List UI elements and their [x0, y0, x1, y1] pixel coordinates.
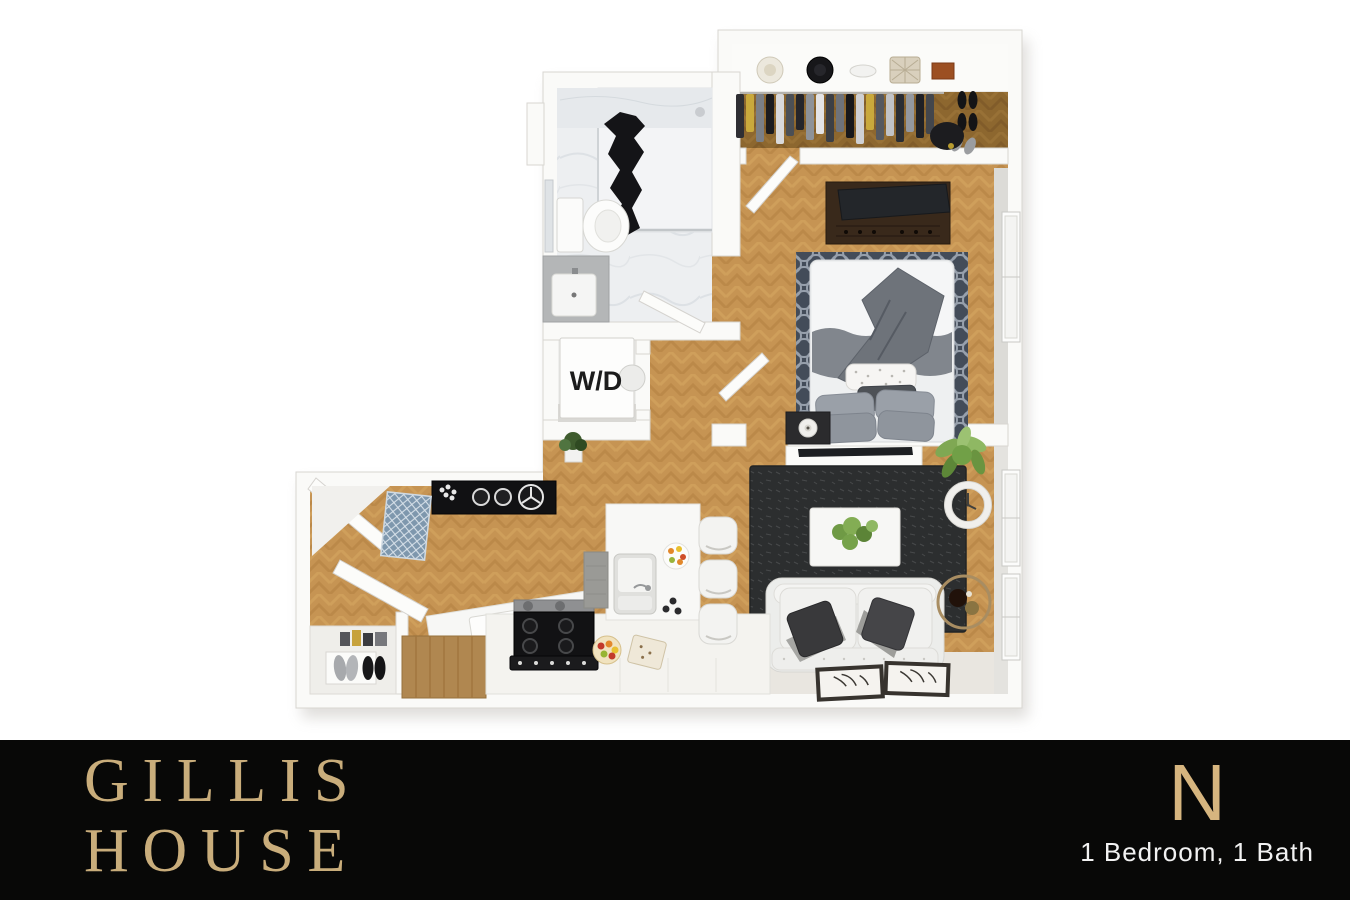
entry-mat [381, 492, 431, 560]
bedroom-window [1002, 212, 1020, 342]
floor-plan-area: W/D [0, 0, 1350, 740]
brand-logo: GILLIS HOUSE [84, 746, 362, 886]
bathroom-vanity [543, 256, 609, 322]
clothes-pile-accent [948, 143, 954, 149]
leaning-art-frames [817, 663, 948, 700]
vanity-faucet [572, 268, 578, 274]
shelf-box [932, 63, 954, 79]
white-hat-crown [764, 64, 776, 76]
console-plate-1 [473, 489, 489, 505]
toilet [557, 198, 629, 252]
wall-notch [527, 103, 544, 165]
fruit-plate [663, 543, 689, 569]
coffee-table [810, 508, 900, 566]
console-plate-2 [495, 489, 511, 505]
black-slipper-2 [375, 656, 386, 680]
bed [810, 260, 954, 443]
nightstand-lamp [786, 412, 830, 444]
shoe-nook [310, 626, 396, 694]
black-slipper-1 [363, 656, 374, 680]
fruit-bowl [593, 636, 621, 664]
black-hat-crown [814, 64, 826, 76]
wall-clock [945, 482, 992, 529]
living-window-1 [1002, 470, 1020, 566]
plan-info: N 1 Bedroom, 1 Bath [1080, 754, 1314, 868]
entry-console [432, 481, 556, 514]
sink-drain [572, 293, 577, 298]
brand-line2: HOUSE [84, 816, 362, 886]
stove [510, 600, 598, 670]
footer-banner: GILLIS HOUSE N 1 Bedroom, 1 Bath [0, 740, 1350, 900]
island-peninsula [606, 504, 700, 620]
plan-letter: N [1080, 754, 1314, 832]
sofa [766, 578, 944, 672]
shower-head [695, 107, 705, 117]
brand-line1: GILLIS [84, 746, 362, 816]
floor-plan-render: W/D [0, 0, 1350, 740]
wood-cabinet [402, 636, 486, 698]
storage-basket [890, 57, 920, 83]
floor-mat [584, 552, 608, 608]
console-clock [519, 485, 543, 509]
bar-stools [699, 517, 737, 644]
shelf-tray [850, 65, 876, 77]
washer-dryer-label: W/D [570, 366, 622, 396]
dresser-tv [826, 182, 950, 244]
clothes-pile [930, 122, 964, 150]
pillow-front-right [877, 410, 935, 442]
island-sink [614, 554, 656, 614]
plan-description: 1 Bedroom, 1 Bath [1080, 837, 1314, 868]
vanity-mirror [545, 180, 553, 252]
laundry-closet: W/D [558, 338, 645, 422]
washer-door [619, 365, 645, 391]
living-window-2 [1002, 574, 1020, 660]
